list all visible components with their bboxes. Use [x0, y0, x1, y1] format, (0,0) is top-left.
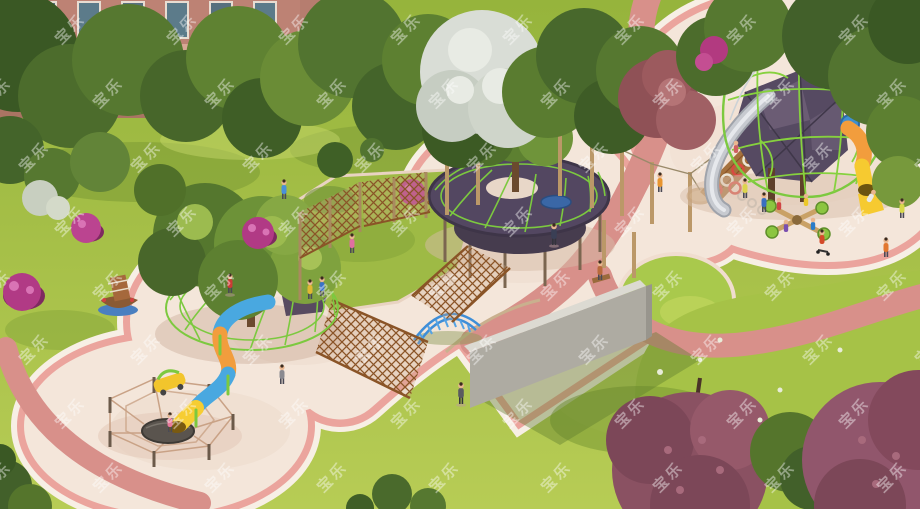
- person-figure: [784, 220, 789, 232]
- playground-aerial-render: 宝乐宝乐宝乐宝乐宝乐宝乐宝乐宝乐宝乐宝乐宝乐宝乐宝乐宝乐宝乐宝乐宝乐宝乐宝乐宝乐…: [0, 0, 920, 509]
- person-figure: [734, 141, 739, 153]
- person-figure: [804, 194, 809, 206]
- person-figure: [777, 198, 782, 210]
- blue-disc-seat: [541, 196, 571, 209]
- person-figure: [811, 218, 816, 230]
- scene-canvas: [0, 0, 920, 509]
